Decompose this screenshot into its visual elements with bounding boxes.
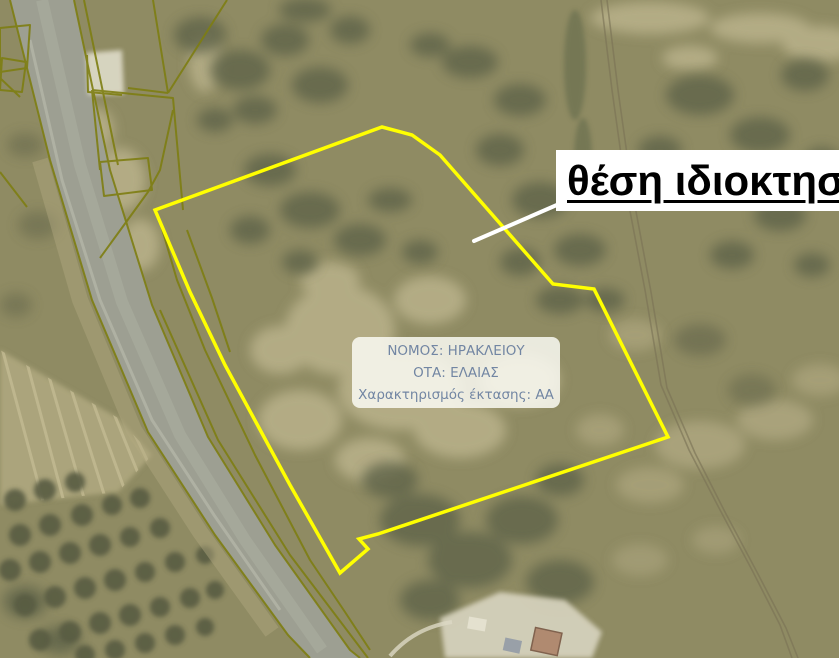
callout-label: θέση ιδιοκτησ	[556, 157, 839, 205]
info-line-ota: ΟΤΑ: ΕΛΑΙΑΣ	[352, 362, 560, 384]
info-line-nomos: ΝΟΜΟΣ: ΗΡΑΚΛΕΙΟΥ	[352, 340, 560, 362]
callout-box: θέση ιδιοκτησ	[556, 150, 839, 211]
satellite-basemap	[0, 0, 839, 658]
info-line-characterization: Χαρακτηρισμός έκτασης: ΑΑ	[352, 384, 560, 406]
building-red-roof	[531, 628, 562, 656]
parcel-info-box: ΝΟΜΟΣ: ΗΡΑΚΛΕΙΟΥ ΟΤΑ: ΕΛΑΙΑΣ Χαρακτηρισμ…	[352, 337, 560, 408]
aerial-map-viewport[interactable]: θέση ιδιοκτησ ΝΟΜΟΣ: ΗΡΑΚΛΕΙΟΥ ΟΤΑ: ΕΛΑΙ…	[0, 0, 839, 658]
